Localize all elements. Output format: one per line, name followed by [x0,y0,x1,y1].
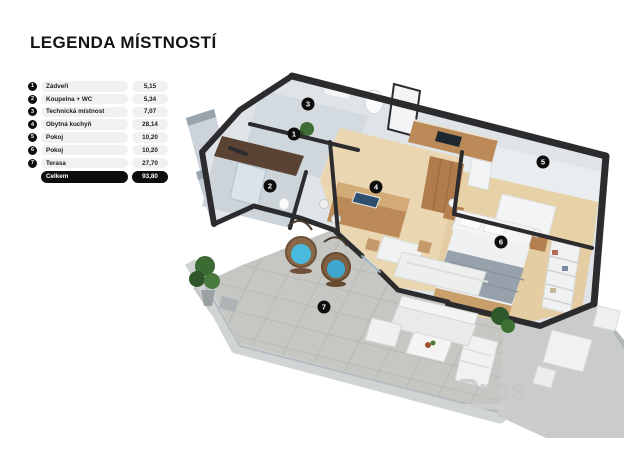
legend-row: 4 Obytná kuchyň 28,14 [28,119,168,130]
plan-badge-2: 2 [264,180,277,193]
legend-row: 5 Pokoj 10,20 [28,132,168,143]
room-label: Terasa [41,158,128,169]
plan-badge-1: 1 [288,128,301,141]
room-number-badge: 2 [28,95,37,104]
svg-text:3: 3 [306,100,310,109]
legend-row: 2 Koupelna + WC 5,34 [28,94,168,105]
floorplan-render: Pros 1 2 3 4 5 6 7 [0,0,624,468]
room-number-badge: 3 [28,107,37,116]
svg-text:1: 1 [292,130,296,139]
room-area: 5,15 [132,81,168,92]
page: { "title": "LEGENDA MÍSTNOSTÍ", "legend"… [0,0,624,468]
room-label: Technická místnost [41,107,128,118]
room-label: Koupelna + WC [41,94,128,105]
room-area: 27,70 [132,158,168,169]
room-number-badge: 1 [28,82,37,91]
legend-row: 6 Pokoj 10,20 [28,145,168,156]
svg-text:Pros: Pros [458,372,527,407]
room-label: Pokoj [41,132,128,143]
room-number-badge: 4 [28,120,37,129]
room-label: Zádveří [41,81,128,92]
svg-text:5: 5 [541,158,545,167]
total-area: 93,80 [132,171,168,183]
svg-text:6: 6 [499,238,503,247]
room-area: 10,20 [132,145,168,156]
room-number-badge: 7 [28,159,37,168]
room-area: 5,34 [132,94,168,105]
legend-total-row: Celkem 93,80 [41,171,168,183]
plan-badge-5: 5 [537,156,550,169]
plan-badge-6: 6 [495,236,508,249]
legend-row: 3 Technická místnost 7,07 [28,107,168,118]
total-label: Celkem [41,171,128,183]
room-area: 10,20 [132,132,168,143]
legend-table: 1 Zádveří 5,15 2 Koupelna + WC 5,34 3 Te… [28,81,168,185]
svg-text:2: 2 [268,182,272,191]
room-number-badge: 6 [28,146,37,155]
room-label: Pokoj [41,145,128,156]
legend-row: 1 Zádveří 5,15 [28,81,168,92]
svg-text:7: 7 [322,303,326,312]
plan-badge-7: 7 [318,301,331,314]
room-area: 7,07 [132,107,168,118]
plan-badge-3: 3 [302,98,315,111]
legend-row: 7 Terasa 27,70 [28,158,168,169]
room-number-badge: 5 [28,133,37,142]
watermark: Pros [458,372,527,409]
room-label: Obytná kuchyň [41,119,128,130]
room-area: 28,14 [132,119,168,130]
plan-badge-4: 4 [370,181,383,194]
